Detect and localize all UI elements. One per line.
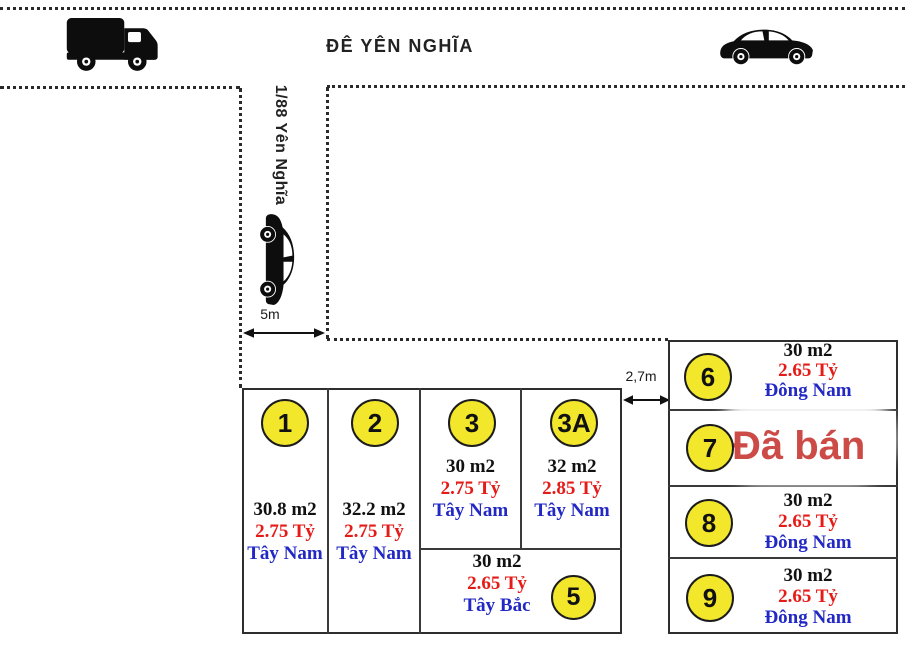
plot-price: 2.85 Tỷ bbox=[522, 478, 622, 500]
plot-1-number-badge: 1 bbox=[261, 399, 309, 447]
plot-price: 2.65 Tỷ bbox=[718, 361, 898, 381]
plot-3-info: 30 m2 2.75 Tỷ Tây Nam bbox=[421, 456, 520, 522]
main-road-bottom-edge-left bbox=[0, 86, 240, 89]
truck-icon bbox=[64, 14, 166, 74]
main-road-bottom-edge-right bbox=[327, 85, 905, 88]
side-road-width-label: 5m bbox=[240, 306, 300, 322]
plot-price: 2.65 Tỷ bbox=[421, 573, 573, 595]
plot-direction: Đông Nam bbox=[718, 381, 898, 401]
plot-direction: Tây Nam bbox=[244, 543, 326, 565]
plot-direction: Tây Nam bbox=[522, 500, 622, 522]
plot-1-info: 30.8 m2 2.75 Tỷ Tây Nam bbox=[244, 499, 326, 565]
plot-8-number-badge: 8 bbox=[685, 499, 733, 547]
plot-9-info: 30 m2 2.65 Tỷ Đông Nam bbox=[718, 565, 898, 628]
plot-3a-info: 32 m2 2.85 Tỷ Tây Nam bbox=[522, 456, 622, 522]
car-vertical-icon bbox=[257, 207, 303, 313]
sold-label: Đã bán bbox=[732, 424, 898, 468]
plot-area: 30 m2 bbox=[718, 565, 898, 586]
plot-direction: Đông Nam bbox=[718, 532, 898, 553]
plot-8-info: 30 m2 2.65 Tỷ Đông Nam bbox=[718, 490, 898, 553]
plot-6-number-badge: 6 bbox=[684, 353, 732, 401]
car-icon bbox=[713, 21, 821, 67]
main-road-top-edge bbox=[0, 7, 905, 10]
side-road-right-edge bbox=[326, 87, 329, 339]
plot-3-number-badge: 3 bbox=[448, 399, 496, 447]
plot-number: 3 bbox=[465, 408, 479, 439]
plot-5-info: 30 m2 2.65 Tỷ Tây Bắc bbox=[421, 551, 573, 617]
plot-number: 1 bbox=[278, 408, 292, 439]
divider-plot3a-plot5 bbox=[421, 548, 622, 550]
plot-direction: Tây Nam bbox=[421, 500, 520, 522]
plot-number: 3A bbox=[557, 408, 590, 439]
alley-width-arrow bbox=[623, 393, 670, 407]
side-road-left-edge bbox=[239, 88, 242, 388]
side-road-width-arrow bbox=[243, 326, 325, 340]
plot-number: 8 bbox=[702, 508, 716, 539]
plot-price: 2.75 Tỷ bbox=[244, 521, 326, 543]
plot-number: 7 bbox=[703, 433, 717, 464]
plot-layout-diagram: ĐÊ YÊN NGHĨA 1/88 Yên Nghĩa bbox=[0, 0, 905, 669]
plot-5-number-badge: 5 bbox=[551, 575, 596, 620]
plot-number: 5 bbox=[567, 583, 581, 612]
alley-width-label: 2,7m bbox=[615, 368, 667, 384]
plot-area: 32 m2 bbox=[522, 456, 622, 478]
plot-area: 30 m2 bbox=[718, 341, 898, 361]
plot-number: 9 bbox=[703, 583, 717, 614]
plot-number: 6 bbox=[701, 362, 715, 393]
plot-9-number-badge: 9 bbox=[686, 574, 734, 622]
plot-area: 30.8 m2 bbox=[244, 499, 326, 521]
side-road-end-edge bbox=[327, 338, 668, 341]
plot-area: 30 m2 bbox=[421, 551, 573, 573]
plot-area: 30 m2 bbox=[421, 456, 520, 478]
plot-price: 2.75 Tỷ bbox=[329, 521, 419, 543]
main-road-label: ĐÊ YÊN NGHĨA bbox=[298, 36, 502, 57]
plot-6-info: 30 m2 2.65 Tỷ Đông Nam bbox=[718, 341, 898, 401]
plot-price: 2.75 Tỷ bbox=[421, 478, 520, 500]
plot-area: 30 m2 bbox=[718, 490, 898, 511]
plot-2-info: 32.2 m2 2.75 Tỷ Tây Nam bbox=[329, 499, 419, 565]
plot-3a-number-badge: 3A bbox=[550, 399, 598, 447]
plot-price: 2.65 Tỷ bbox=[718, 586, 898, 607]
plot-area: 32.2 m2 bbox=[329, 499, 419, 521]
plot-number: 2 bbox=[368, 408, 382, 439]
divider-plot8-plot9 bbox=[668, 557, 898, 559]
plot-price: 2.65 Tỷ bbox=[718, 511, 898, 532]
plot-7-number-badge: 7 bbox=[686, 424, 734, 472]
divider-plot7-plot8 bbox=[668, 485, 898, 487]
side-road-label: 1/88 Yên Nghĩa bbox=[265, 70, 289, 220]
plot-2-number-badge: 2 bbox=[351, 399, 399, 447]
plot-direction: Tây Nam bbox=[329, 543, 419, 565]
plot-direction: Đông Nam bbox=[718, 607, 898, 628]
